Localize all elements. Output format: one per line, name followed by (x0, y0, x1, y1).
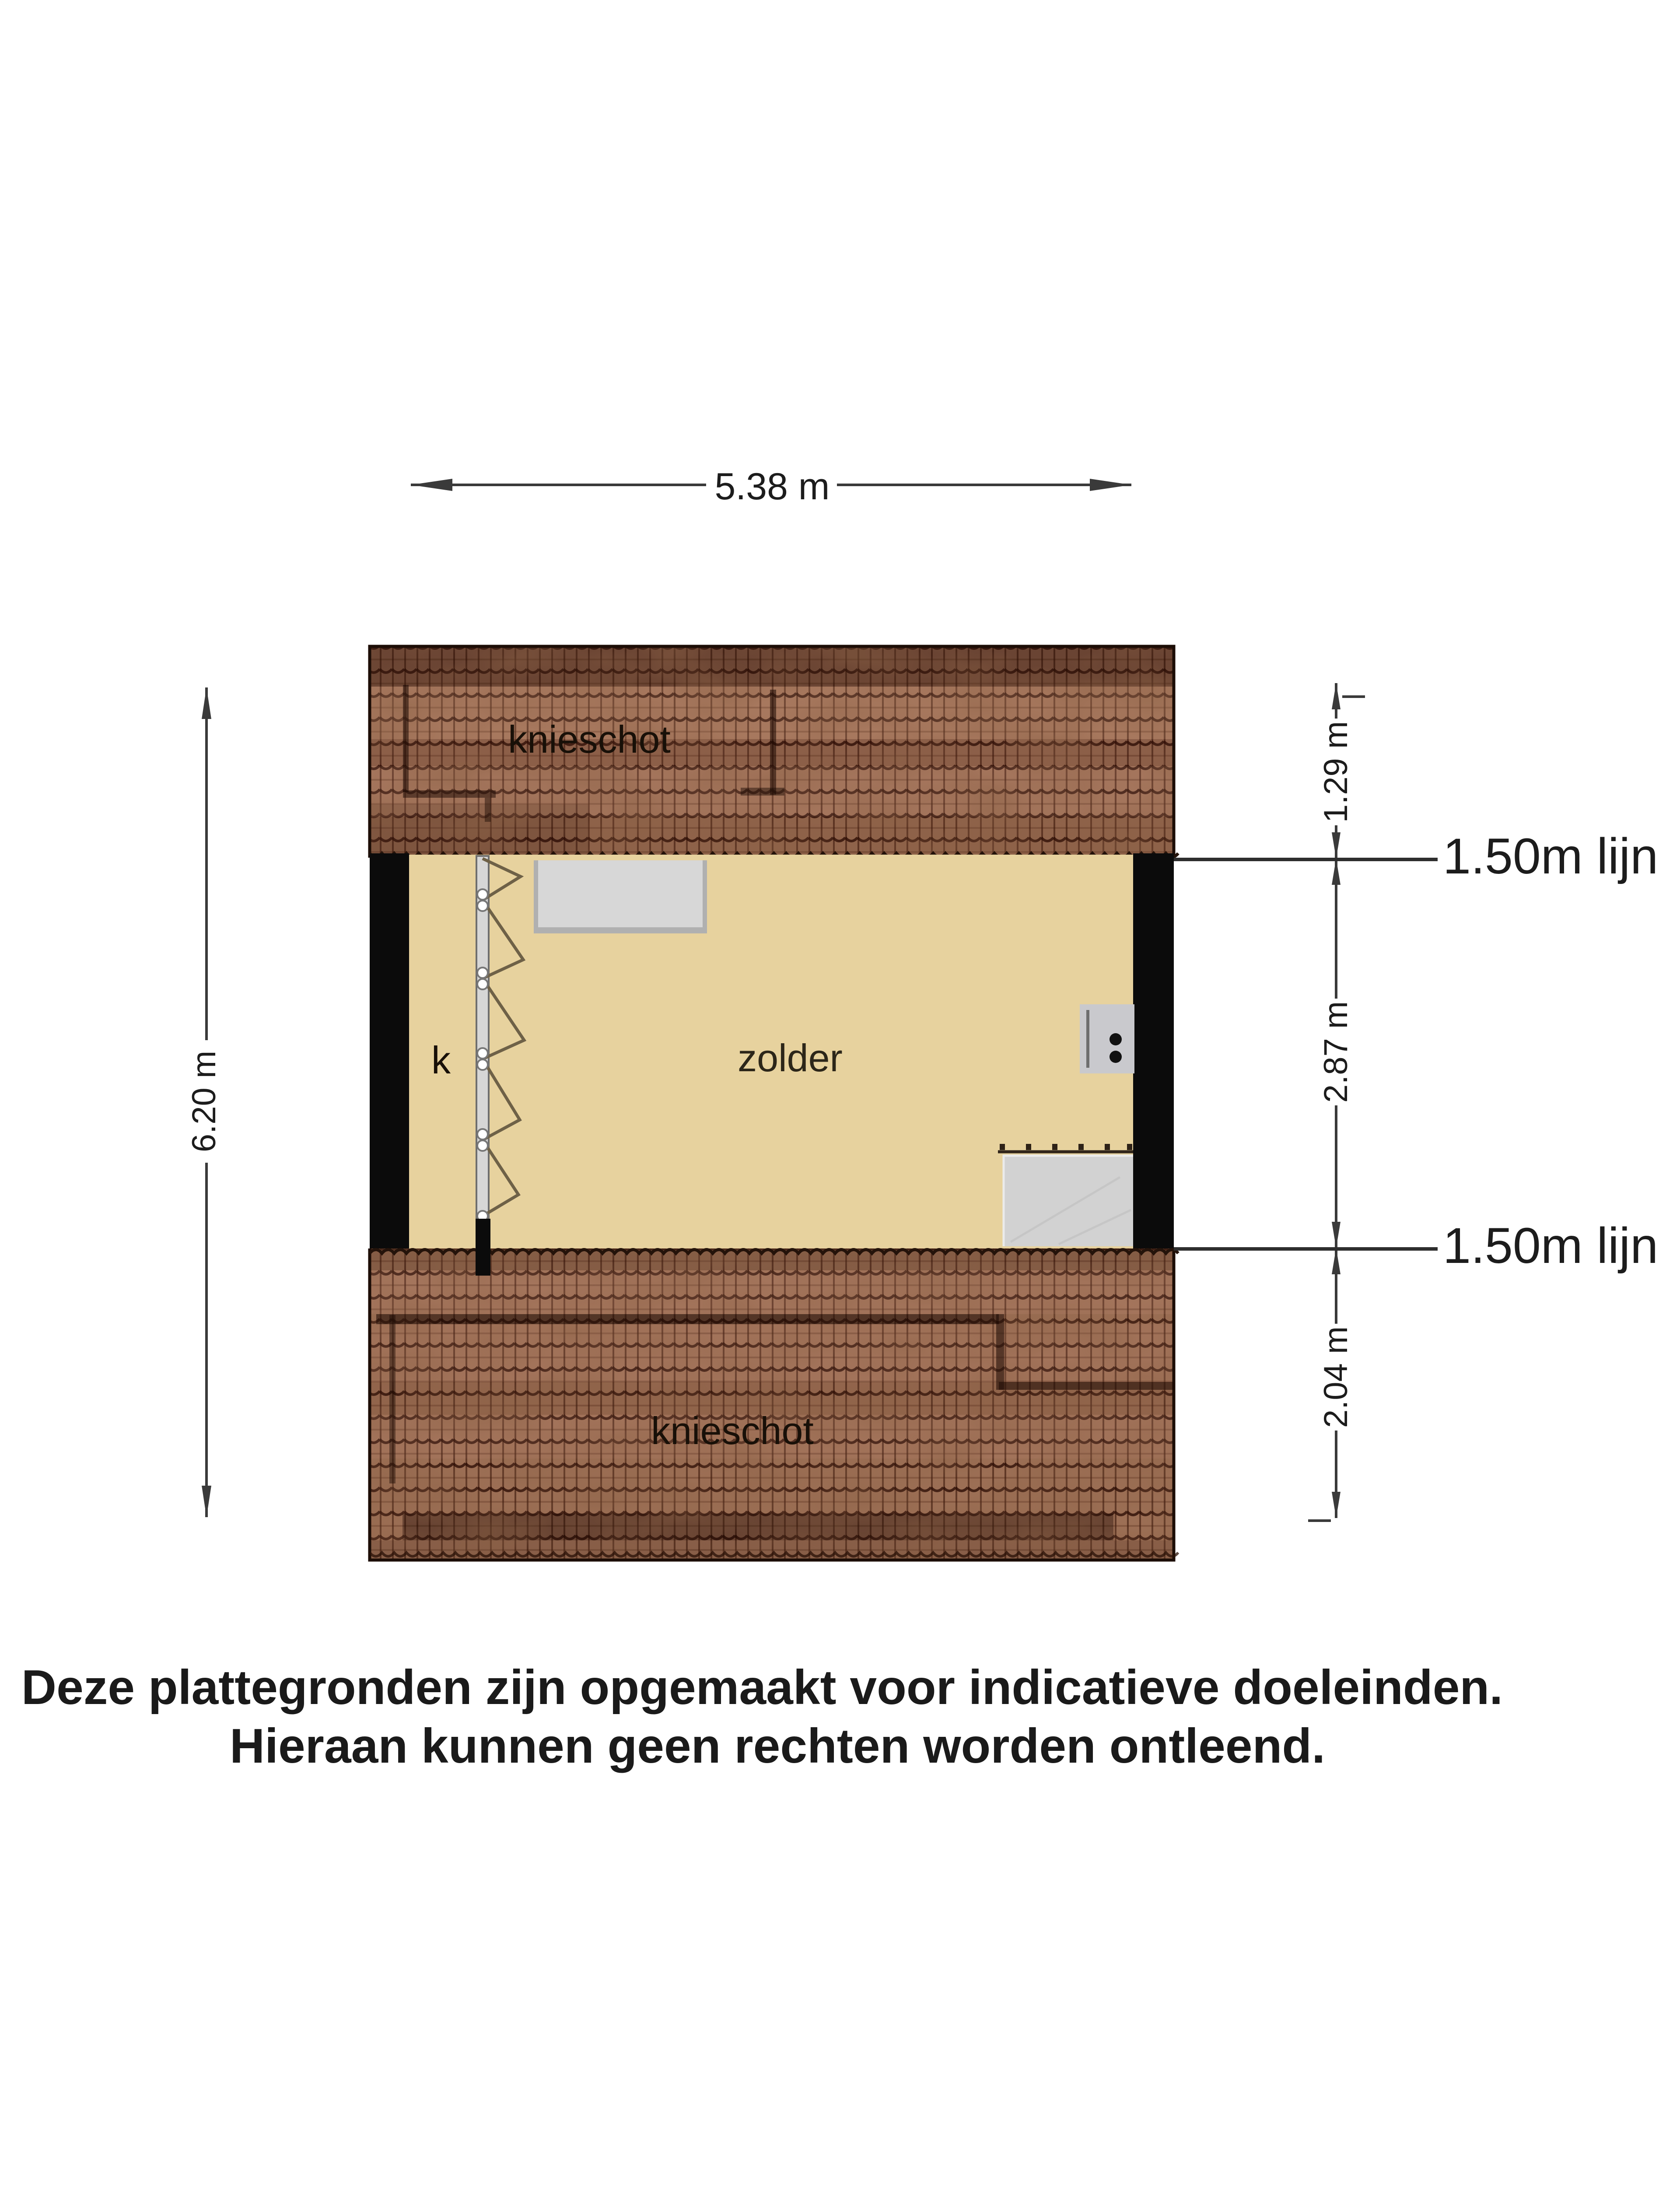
svg-text:1.50m lijn: 1.50m lijn (1443, 1218, 1658, 1274)
svg-text:1.50m lijn: 1.50m lijn (1443, 828, 1658, 884)
svg-text:2.04 m: 2.04 m (1317, 1326, 1354, 1428)
svg-text:1.29 m: 1.29 m (1317, 721, 1354, 823)
svg-text:5.38 m: 5.38 m (715, 466, 830, 508)
svg-text:k: k (431, 1038, 451, 1082)
svg-text:Hieraan kunnen geen rechten wo: Hieraan kunnen geen rechten worden ontle… (230, 1719, 1325, 1773)
svg-text:knieschot: knieschot (508, 718, 671, 761)
svg-text:6.20 m: 6.20 m (185, 1051, 223, 1152)
svg-text:Deze plattegronden zijn opgema: Deze plattegronden zijn opgemaakt voor i… (21, 1660, 1503, 1715)
svg-text:knieschot: knieschot (651, 1409, 814, 1452)
svg-text:2.87 m: 2.87 m (1317, 1001, 1354, 1103)
svg-text:zolder: zolder (738, 1036, 843, 1080)
